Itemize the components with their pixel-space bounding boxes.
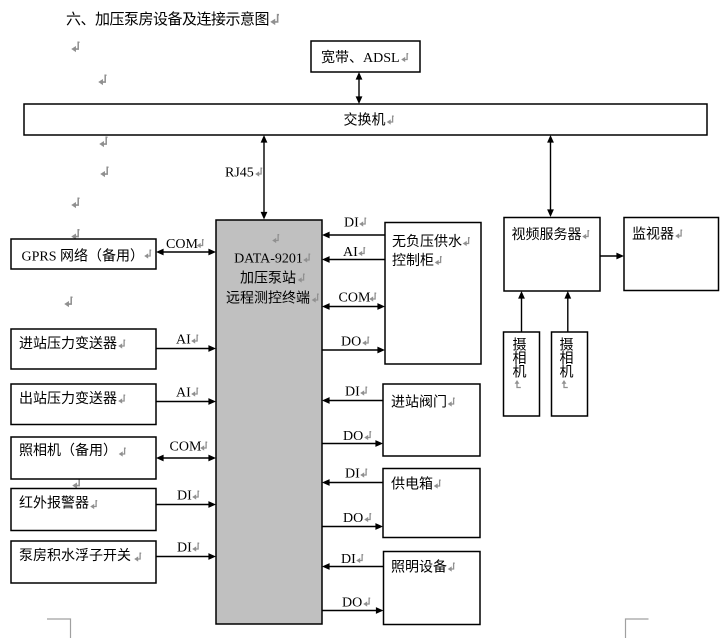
svg-text:DI: DI [177,541,192,556]
svg-text:COM: COM [166,237,198,252]
svg-text:加压泵站: 加压泵站 [240,271,296,287]
svg-text:COM: COM [339,291,371,306]
svg-text:照明设备: 照明设备 [391,559,447,576]
svg-text:DI: DI [345,467,360,482]
svg-text:交换机: 交换机 [344,112,386,129]
svg-text:DATA-9201: DATA-9201 [234,252,303,267]
svg-text:COM: COM [170,440,202,455]
svg-text:RJ45: RJ45 [225,166,254,181]
svg-text:DO: DO [343,511,363,526]
svg-text:远程测控终端: 远程测控终端 [226,291,310,307]
svg-text:DI: DI [345,385,360,400]
svg-text:控制柜: 控制柜 [392,253,434,269]
svg-text:DO: DO [343,429,363,444]
svg-text:DO: DO [342,596,362,611]
svg-text:六、加压泵房设备及连接示意图: 六、加压泵房设备及连接示意图 [66,10,269,28]
svg-text:AI: AI [176,386,191,401]
svg-text:视频服务器: 视频服务器 [512,227,582,243]
svg-text:进站压力变送器: 进站压力变送器 [19,336,117,352]
svg-text:无负压供水: 无负压供水 [392,234,462,250]
svg-text:照相机（备用）: 照相机（备用） [19,442,117,459]
svg-text:GPRS 网络（备用）: GPRS 网络（备用） [22,248,145,265]
svg-text:泵房积水浮子开关: 泵房积水浮子开关 [19,548,131,564]
svg-text:DI: DI [341,552,356,567]
svg-text:出站压力变送器: 出站压力变送器 [19,391,117,407]
svg-text:AI: AI [343,245,358,260]
svg-text:机: 机 [513,365,527,381]
svg-text:AI: AI [176,333,191,348]
svg-text:监视器: 监视器 [632,227,674,243]
svg-text:DI: DI [344,216,359,231]
svg-text:供电箱: 供电箱 [391,477,433,493]
svg-text:机: 机 [560,365,574,381]
svg-text:宽带、ADSL: 宽带、ADSL [321,49,400,66]
svg-text:DO: DO [341,335,361,350]
svg-text:DI: DI [177,489,192,504]
svg-text:红外报警器: 红外报警器 [19,496,89,512]
svg-text:进站阀门: 进站阀门 [391,395,447,411]
